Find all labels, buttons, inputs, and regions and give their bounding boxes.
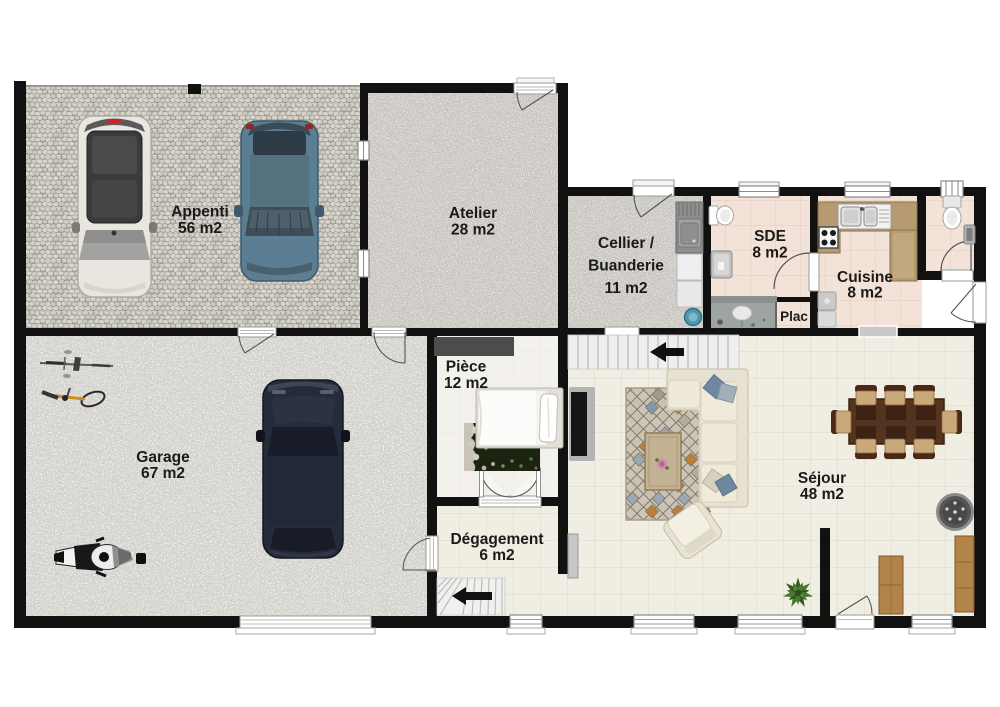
- svg-text:Plac: Plac: [780, 309, 808, 324]
- svg-text:8 m2: 8 m2: [752, 245, 787, 262]
- svg-text:SDE: SDE: [754, 228, 786, 245]
- svg-text:6 m2: 6 m2: [479, 547, 514, 564]
- svg-text:12 m2: 12 m2: [444, 375, 488, 392]
- svg-text:Buanderie: Buanderie: [588, 258, 664, 275]
- svg-text:28 m2: 28 m2: [451, 222, 495, 239]
- svg-text:Cellier /: Cellier /: [598, 235, 655, 252]
- svg-text:67 m2: 67 m2: [141, 465, 185, 482]
- svg-text:11 m2: 11 m2: [604, 280, 647, 297]
- svg-text:8 m2: 8 m2: [847, 285, 882, 302]
- svg-text:Appenti: Appenti: [171, 204, 229, 221]
- svg-text:Atelier: Atelier: [449, 205, 497, 222]
- svg-text:Dégagement: Dégagement: [450, 531, 543, 548]
- svg-text:Cuisine: Cuisine: [837, 269, 893, 286]
- svg-text:Garage: Garage: [136, 449, 190, 466]
- svg-text:Pièce: Pièce: [446, 359, 487, 376]
- svg-text:Séjour: Séjour: [798, 470, 846, 487]
- svg-text:48 m2: 48 m2: [800, 486, 844, 503]
- svg-text:56 m2: 56 m2: [178, 220, 222, 237]
